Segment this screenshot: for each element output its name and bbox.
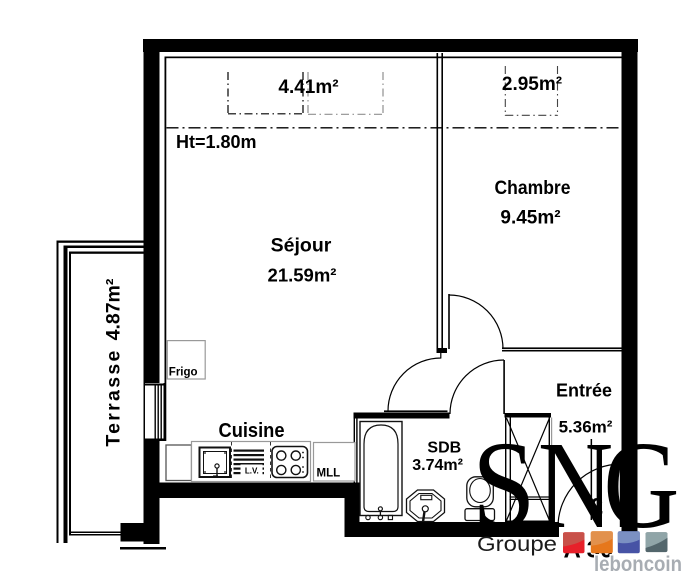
svg-text:G: G [603,416,679,554]
svg-text:Terrasse: Terrasse [103,348,125,446]
svg-text:MLL: MLL [317,468,341,480]
svg-text:Ht=1.80m: Ht=1.80m [176,132,257,152]
svg-text:Groupe: Groupe [477,533,557,556]
svg-text:Cuisine: Cuisine [219,420,285,442]
svg-text:Frigo: Frigo [169,367,198,379]
svg-text:SDB: SDB [427,440,461,457]
svg-text:4.87m²: 4.87m² [103,278,125,340]
svg-text:2: 2 [591,494,603,519]
svg-text:2.95m²: 2.95m² [502,74,562,95]
svg-text:leboncoin: leboncoin [594,553,682,576]
svg-text:3.74m²: 3.74m² [412,457,463,474]
svg-text:Chambre: Chambre [495,178,571,199]
svg-text:9.45m²: 9.45m² [500,208,560,229]
svg-text:4.41m²: 4.41m² [278,77,338,98]
svg-text:Entrée: Entrée [556,381,612,401]
svg-text:L.V.: L.V. [245,467,259,476]
svg-text:Séjour: Séjour [271,235,332,257]
svg-text:21.59m²: 21.59m² [268,265,337,286]
